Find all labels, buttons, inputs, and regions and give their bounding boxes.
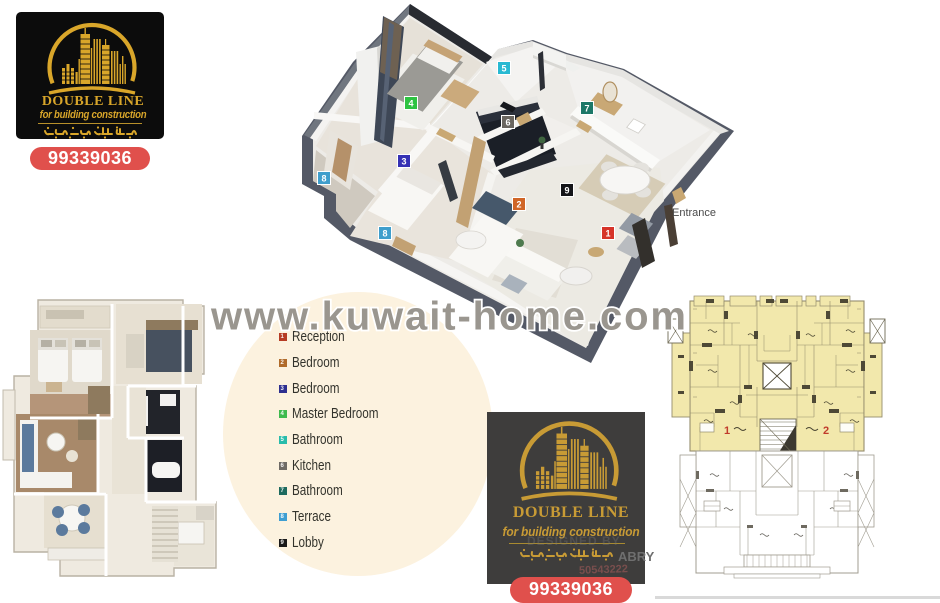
svg-text:www.kuwait-home.com: www.kuwait-home.com bbox=[210, 295, 688, 339]
svg-text:1: 1 bbox=[605, 229, 610, 239]
svg-text:7: 7 bbox=[584, 104, 589, 114]
svg-text:6: 6 bbox=[505, 118, 510, 128]
svg-text:9: 9 bbox=[564, 186, 569, 196]
svg-text:2: 2 bbox=[516, 200, 521, 210]
svg-text:8: 8 bbox=[321, 174, 326, 184]
svg-text:8: 8 bbox=[382, 229, 387, 239]
svg-text:1: 1 bbox=[724, 425, 730, 437]
svg-text:3: 3 bbox=[401, 157, 406, 167]
svg-text:5: 5 bbox=[501, 64, 506, 74]
svg-text:4: 4 bbox=[408, 99, 413, 109]
svg-text:Entrance: Entrance bbox=[672, 207, 716, 219]
svg-text:2: 2 bbox=[823, 425, 829, 437]
